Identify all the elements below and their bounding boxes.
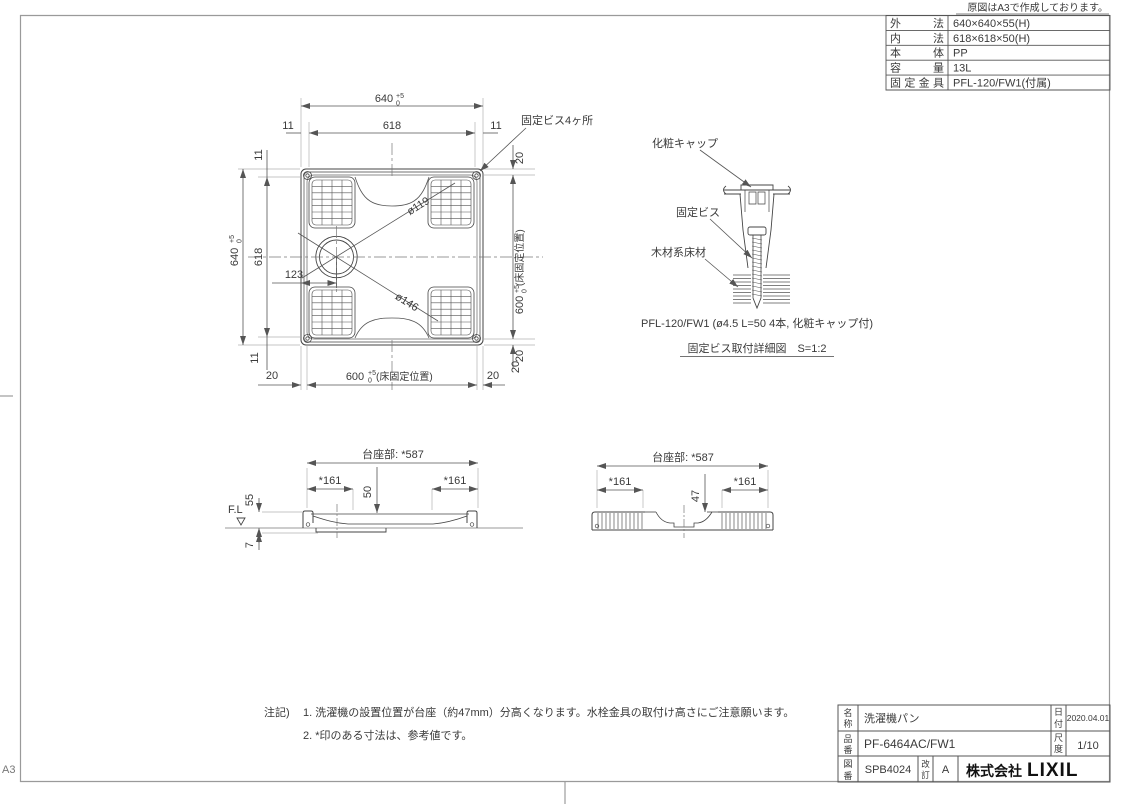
dim-600-bottom-tol-dn: 0 [368, 378, 372, 385]
dim-618-left: 618 [253, 248, 265, 266]
revision: A [942, 764, 950, 776]
dim-600-bottom: 600 [346, 371, 364, 383]
date-label-2: 付 [1054, 719, 1063, 729]
dim-600-right-tol-dn: 0 [522, 289, 529, 293]
dwg-label-1: 図 [843, 759, 852, 769]
section-a-161-right: *161 [444, 475, 467, 487]
pad-grids [309, 177, 474, 338]
spec-label-outer: 外 法 [890, 16, 944, 30]
dim-20-right-top: 20 [514, 152, 526, 164]
company-logo: LIXIL [1027, 760, 1078, 781]
product-name: 洗濯機パン [864, 711, 920, 725]
dim-640-top: 640 [375, 93, 393, 105]
fix-screw-callout: 固定ビス4ヶ所 [521, 113, 593, 127]
spec-value-inner: 618×618×50(H) [953, 33, 1030, 45]
sheet-size-label: A3 [2, 764, 15, 776]
dim-11-left-top: 11 [253, 149, 265, 160]
name-label-2: 称 [843, 718, 852, 729]
dim-20-bottom-right: 20 [487, 370, 499, 382]
scale-value: 1/10 [1077, 740, 1098, 752]
dim-20-right-bottom: 20 [514, 350, 526, 362]
dim-640-top-tol-dn: 0 [396, 101, 400, 108]
drawing-sheet: A3 原図はA3で作成しております。 外 法 640×640×55(H) 内 法… [0, 0, 1131, 805]
dim-640-left-tol-up: +5 [229, 235, 236, 243]
section-b-47: 47 [690, 490, 702, 502]
dim-600-bottom-tol-up: +5 [368, 370, 376, 377]
screw-label: 固定ビス [676, 205, 720, 219]
plan-dim-texts: 640 +5 0 618 11 11 640+50 618 11 11 123 … [229, 93, 593, 385]
detail-caption: 固定ビス取付詳細図 S=1:2 [687, 341, 826, 355]
section-b-profile [592, 512, 773, 530]
fl-triangle-marker [237, 518, 245, 525]
section-a: F.L 台座部: *587 *161 *161 50 55 7 [225, 447, 523, 550]
part-label-1: 品 [843, 734, 852, 744]
section-a-pedestal-dim: 台座部: *587 [362, 447, 424, 461]
dia-146-label: ø146 [393, 291, 421, 314]
floor-material-label: 木材系床材 [651, 245, 706, 259]
scale-label-2: 度 [1054, 743, 1063, 754]
fl-label: F.L [228, 504, 243, 516]
dim-600-right: 600 [514, 296, 526, 314]
dim-640-top-tol-up: +5 [396, 93, 404, 100]
section-a-161-left: *161 [319, 475, 342, 487]
rev-label-1: 改 [921, 759, 930, 769]
dimension-lines [243, 106, 513, 385]
centerlines [248, 143, 543, 390]
note-line-2: 2. *印のある寸法は、参考値です。 [303, 728, 472, 742]
section-a-55: 55 [244, 494, 256, 506]
spec-value-body: PP [953, 48, 968, 60]
drawing-number: SPB4024 [865, 764, 911, 776]
dim-11-left-bottom: 11 [249, 352, 261, 363]
screw-spec-line: PFL-120/FW1 (ø4.5 L=50 4本, 化粧キャップ付) [641, 316, 873, 330]
date-label-1: 日 [1054, 707, 1063, 717]
notes-heading: 注記) [264, 705, 290, 719]
section-a-50: 50 [362, 486, 374, 498]
spec-label-inner: 内 法 [890, 31, 944, 45]
section-b-161-left: *161 [609, 476, 632, 488]
date-value: 2020.04.01 [1067, 713, 1110, 723]
dim-600-right-note: (床固定位置) [513, 229, 526, 286]
name-label-1: 名 [843, 707, 852, 718]
spec-label-body: 本 体 [890, 46, 944, 60]
screw-detail-view: 化粧キャップ 固定ビス 木材系床材 PFL-120/FW1 (ø4.5 L=50… [641, 136, 873, 357]
cad-drawing: A3 原図はA3で作成しております。 外 法 640×640×55(H) 内 法… [0, 0, 1131, 805]
dim-123: 123 [285, 269, 303, 281]
note-line-1: 1. 洗濯機の設置位置が台座（約47mm）分高くなります。水栓金具の取付け高さに… [303, 705, 794, 719]
rev-label-2: 訂 [921, 770, 930, 780]
dim-11-top-right: 11 [490, 120, 501, 132]
plan-view: ø119 ø146 [229, 93, 593, 390]
spec-label-fixture: 固定金具 [890, 75, 944, 89]
scale-label-1: 尺 [1054, 733, 1063, 743]
dim-11-top-left: 11 [282, 120, 293, 132]
spec-value-fixture: PFL-120/FW1(付属) [953, 76, 1051, 89]
section-b-161-right: *161 [734, 476, 757, 488]
dim-20-bottom-left: 20 [266, 370, 278, 382]
cap-label: 化粧キャップ [652, 136, 718, 150]
extension-lines [238, 98, 535, 390]
dim-618-top: 618 [383, 120, 401, 132]
part-number: PF-6464AC/FW1 [864, 737, 956, 751]
title-block: 名 称 洗濯機パン 品 番 PF-6464AC/FW1 図 番 SPB4024 … [838, 705, 1110, 782]
spec-value-outer: 640×640×55(H) [953, 18, 1030, 30]
section-b-pedestal-dim: 台座部: *587 [652, 450, 714, 464]
spec-table: 外 法 640×640×55(H) 内 法 618×618×50(H) 本 体 … [886, 16, 1110, 91]
section-a-7: 7 [244, 542, 256, 548]
origin-note: 原図はA3で作成しております。 [967, 2, 1108, 14]
company-name-jp: 株式会社 [966, 763, 1022, 779]
dim-600-bottom-note: (床固定位置) [376, 370, 433, 383]
spec-value-capacity: 13L [953, 63, 971, 75]
dwg-label-2: 番 [843, 770, 852, 781]
section-a-profile [303, 511, 477, 532]
dim-640-left: 640 [229, 248, 241, 266]
section-b: 台座部: *587 *161 *161 47 [592, 450, 773, 538]
notes-block: 注記) 1. 洗濯機の設置位置が台座（約47mm）分高くなります。水栓金具の取付… [264, 705, 794, 742]
spec-label-capacity: 容 量 [890, 61, 944, 75]
dim-640-left-tol-dn: 0 [237, 239, 244, 243]
part-label-2: 番 [843, 744, 852, 755]
